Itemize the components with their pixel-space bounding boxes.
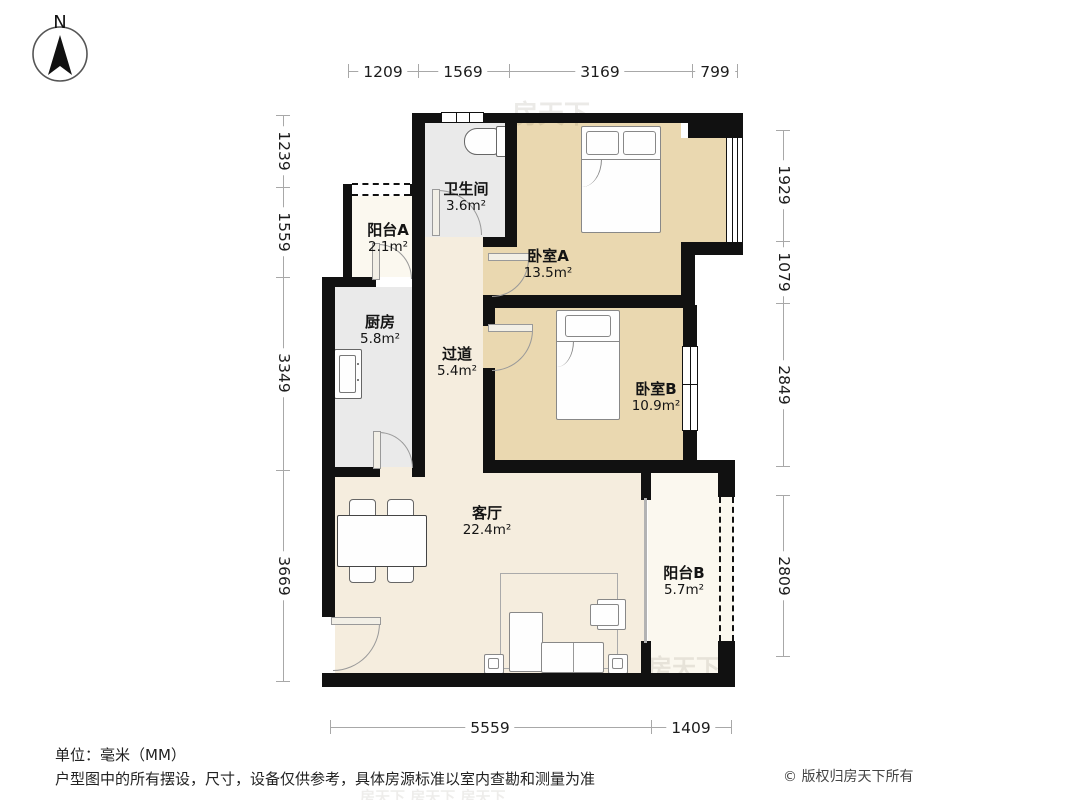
window-mullion xyxy=(456,113,457,122)
dining-table xyxy=(337,515,427,567)
north-arrow-icon xyxy=(48,35,72,75)
label-corridor: 过道 5.4m² xyxy=(437,345,477,379)
wall xyxy=(505,113,693,123)
copyright: © 版权归房天下所有 xyxy=(783,766,913,786)
balcony-b-window xyxy=(719,497,734,641)
dimension-value: 1239 xyxy=(275,126,293,175)
dimension-value: 3169 xyxy=(575,63,624,81)
side-table-top xyxy=(488,658,499,669)
compass-north-label: N xyxy=(53,12,66,33)
chair xyxy=(349,565,376,583)
room-name: 卫生间 xyxy=(443,180,488,198)
dimension-tick xyxy=(731,720,732,734)
wall xyxy=(718,473,735,497)
side-table xyxy=(484,654,504,674)
label-bedroom-a: 卧室A 13.5m² xyxy=(524,247,573,281)
stove-top xyxy=(339,355,356,393)
room-name: 阳台B xyxy=(663,564,704,582)
wall xyxy=(412,113,425,477)
room-name: 厨房 xyxy=(360,313,400,331)
dimension-tick xyxy=(276,681,290,682)
wall xyxy=(343,184,352,280)
sofa-seat xyxy=(541,642,604,673)
dimension-value: 3669 xyxy=(275,551,293,600)
dimension-right-upper: 1929 1079 2849 xyxy=(775,130,793,467)
balcony-a-window xyxy=(352,183,410,196)
window-mullion xyxy=(683,384,697,385)
single-bed xyxy=(556,310,620,420)
pillow xyxy=(623,131,656,155)
wall xyxy=(718,641,735,673)
room-area: 5.7m² xyxy=(663,582,704,598)
label-kitchen: 厨房 5.8m² xyxy=(360,313,400,347)
dimension-top: 1209 1569 3169 799 xyxy=(348,63,738,81)
wall xyxy=(688,113,743,138)
dimension-tick xyxy=(418,64,419,78)
compass: N xyxy=(27,8,93,88)
label-balcony-a: 阳台A 2.1m² xyxy=(367,221,409,255)
wall xyxy=(688,242,743,255)
label-bedroom-b: 卧室B 10.9m² xyxy=(632,380,681,414)
bay-window xyxy=(726,137,743,243)
sofa-cushion-line xyxy=(573,643,574,672)
disclaimer: 户型图中的所有摆设，尺寸，设备仅供参考，具体房源标准以室内查勘和测量为准 xyxy=(55,768,595,789)
pillow xyxy=(586,131,619,155)
room-name: 阳台A xyxy=(367,221,409,239)
dimension-tick xyxy=(692,64,693,78)
dimension-value: 2849 xyxy=(775,360,793,409)
dimension-tick xyxy=(651,720,652,734)
window-mullion xyxy=(690,347,691,430)
dimension-tick xyxy=(276,115,290,116)
dimension-value: 5559 xyxy=(465,719,514,737)
wall xyxy=(483,460,735,473)
pillow xyxy=(565,315,611,337)
wall xyxy=(483,295,688,308)
wall xyxy=(641,473,651,500)
bedroom-b-door xyxy=(488,324,533,332)
room-name: 卧室B xyxy=(632,380,681,398)
floorplan-canvas: N 房天下 房天下 房天下 房天下 房天下 xyxy=(0,0,1066,800)
dimension-value: 1409 xyxy=(666,719,715,737)
wall xyxy=(483,237,513,247)
dimension-tick xyxy=(276,187,290,188)
dimension-tick xyxy=(776,495,790,496)
dimension-tick xyxy=(776,241,790,242)
wall xyxy=(483,368,495,460)
dimension-tick xyxy=(776,130,790,131)
dimension-tick xyxy=(776,466,790,467)
room-area: 10.9m² xyxy=(632,398,681,414)
dimension-value: 2809 xyxy=(775,551,793,600)
dimension-tick xyxy=(776,656,790,657)
wall xyxy=(322,467,380,477)
side-table xyxy=(608,654,628,674)
dimension-tick xyxy=(276,277,290,278)
armchair-seat xyxy=(590,604,619,626)
dimension-value: 1929 xyxy=(775,160,793,209)
dimension-tick xyxy=(276,470,290,471)
dimension-value: 1559 xyxy=(275,207,293,256)
dimension-value: 799 xyxy=(695,63,735,81)
wall xyxy=(322,287,335,617)
chair xyxy=(387,565,414,583)
wall xyxy=(505,123,517,247)
dimension-value: 1569 xyxy=(438,63,487,81)
stove-knob xyxy=(357,363,359,365)
blanket-fold xyxy=(557,341,574,367)
label-balcony-b: 阳台B 5.7m² xyxy=(663,564,704,598)
room-area: 2.1m² xyxy=(367,239,409,255)
room-area: 5.8m² xyxy=(360,331,400,347)
toilet-bowl xyxy=(464,128,498,155)
stove xyxy=(334,349,362,399)
unit-note: 单位：毫米（MM） xyxy=(55,744,186,765)
room-name: 过道 xyxy=(437,345,477,363)
room-area: 5.4m² xyxy=(437,363,477,379)
dimension-value: 3349 xyxy=(275,348,293,397)
balcony-slider xyxy=(644,498,647,643)
stove-knob xyxy=(357,379,359,381)
side-table-top xyxy=(612,658,623,669)
compass-graphic: N xyxy=(27,8,93,84)
label-living: 客厅 22.4m² xyxy=(463,504,512,538)
label-bathroom: 卫生间 3.6m² xyxy=(443,180,488,214)
wall xyxy=(322,673,735,687)
window-mullion xyxy=(737,138,738,242)
bathroom-door xyxy=(432,189,440,236)
wall xyxy=(641,641,651,673)
dimension-value: 1209 xyxy=(358,63,407,81)
entry-door xyxy=(331,617,381,625)
window-mullion xyxy=(732,138,733,242)
room-bedroom-a-bay xyxy=(681,138,726,242)
dimension-right-lower: 2809 xyxy=(775,495,793,657)
bedroom-b-window xyxy=(682,346,698,431)
window-mullion xyxy=(469,113,470,122)
wall xyxy=(683,305,697,347)
bathroom-window xyxy=(441,112,484,123)
room-name: 客厅 xyxy=(463,504,512,522)
dimension-tick xyxy=(737,64,738,78)
dimension-tick xyxy=(509,64,510,78)
double-bed xyxy=(581,126,661,233)
dimension-bottom: 5559 1409 xyxy=(330,719,732,737)
room-area: 3.6m² xyxy=(443,198,488,214)
dimension-tick xyxy=(348,64,349,78)
room-area: 22.4m² xyxy=(463,522,512,538)
dimension-tick xyxy=(330,720,331,734)
wall xyxy=(683,429,697,462)
dimension-value: 1079 xyxy=(775,247,793,296)
sofa-chaise xyxy=(509,612,543,672)
blanket-fold xyxy=(582,159,602,187)
room-area: 13.5m² xyxy=(524,265,573,281)
dimension-tick xyxy=(776,303,790,304)
room-name: 卧室A xyxy=(524,247,573,265)
kitchen-door xyxy=(373,431,381,469)
dimension-left: 1239 1559 3349 3669 xyxy=(275,115,293,682)
